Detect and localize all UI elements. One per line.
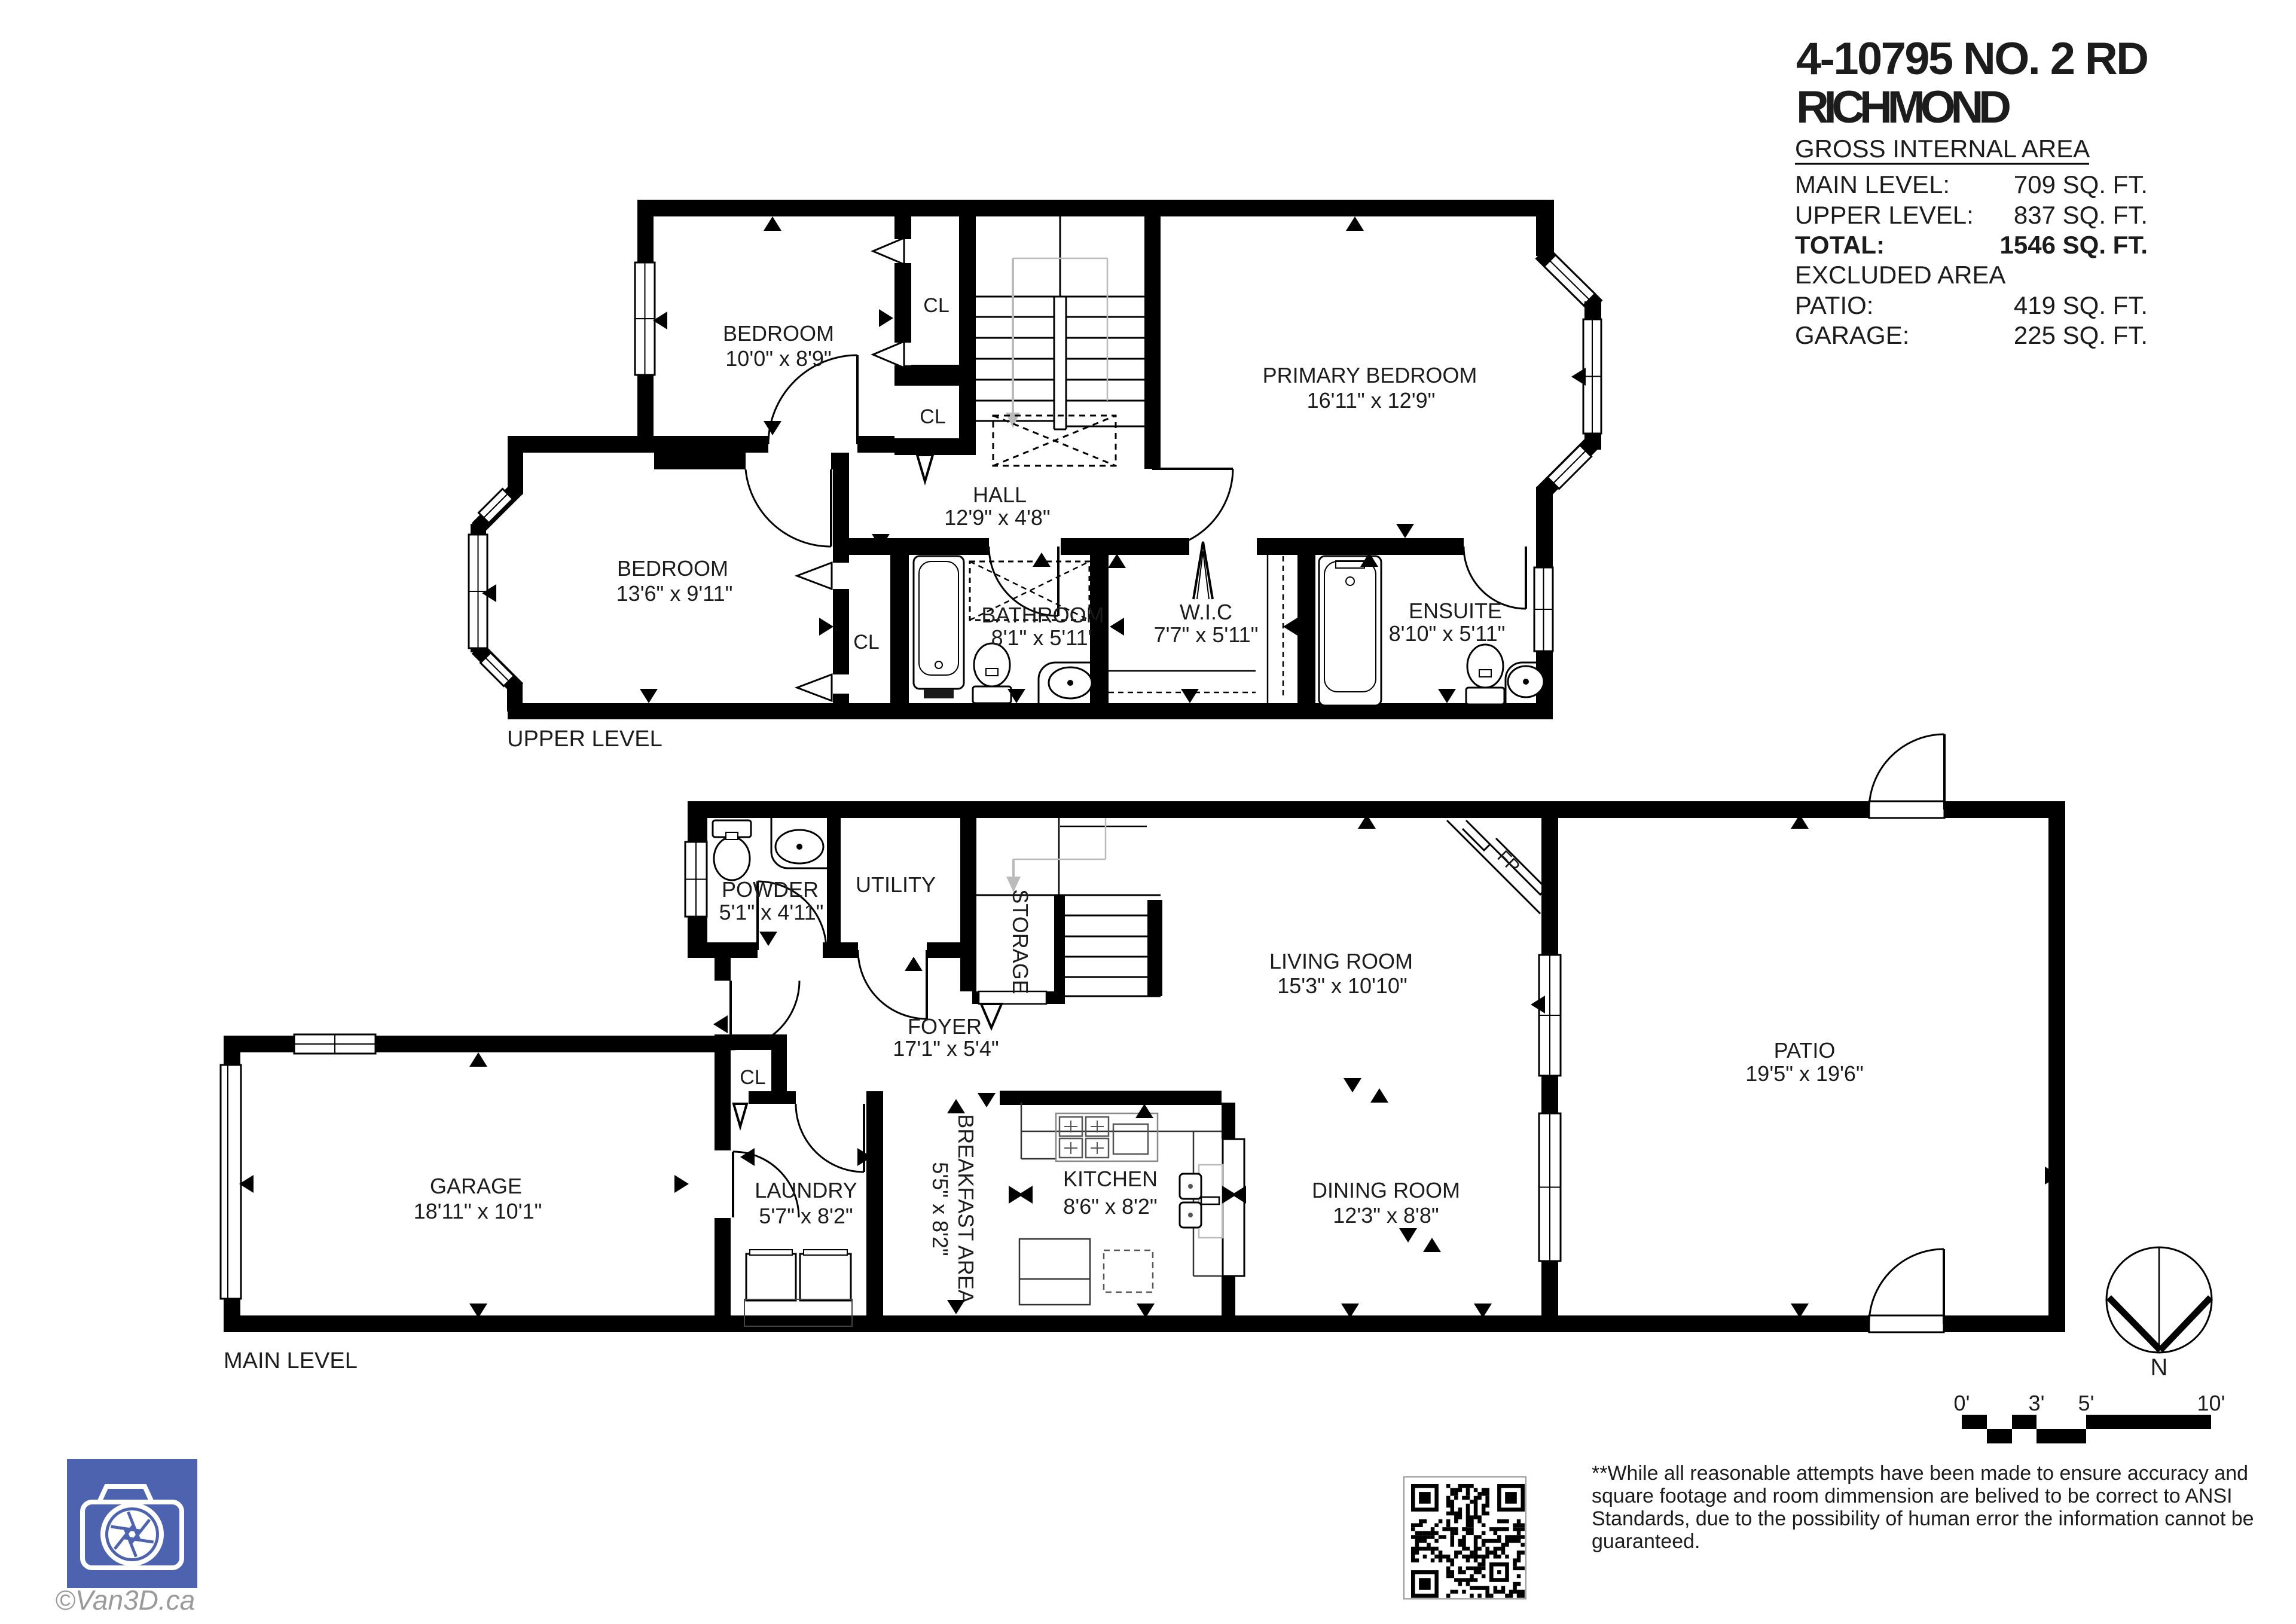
- svg-text:4-10795 NO. 2 RD: 4-10795 NO. 2 RD: [1796, 33, 2149, 84]
- svg-text:5'7" x 8'2": 5'7" x 8'2": [759, 1204, 853, 1228]
- svg-text:BEDROOM: BEDROOM: [617, 556, 728, 581]
- svg-text:STORAGE: STORAGE: [1008, 889, 1033, 994]
- svg-text:POWDER: POWDER: [722, 877, 819, 902]
- svg-text:10'0" x 8'9": 10'0" x 8'9": [725, 346, 831, 371]
- svg-text:5': 5': [2078, 1391, 2095, 1415]
- svg-text:1546 SQ. FT.: 1546 SQ. FT.: [2000, 231, 2148, 259]
- svg-text:8'1" x 5'11": 8'1" x 5'11": [991, 625, 1096, 650]
- svg-text:8'10" x 5'11": 8'10" x 5'11": [1389, 621, 1506, 646]
- svg-text:W.I.C: W.I.C: [1180, 600, 1232, 624]
- svg-text:PATIO: PATIO: [1774, 1038, 1836, 1063]
- svg-text:19'5" x 19'6": 19'5" x 19'6": [1745, 1061, 1863, 1086]
- svg-text:225 SQ. FT.: 225 SQ. FT.: [2014, 321, 2148, 349]
- svg-text:PATIO:: PATIO:: [1795, 291, 1873, 319]
- svg-text:13'6" x 9'11": 13'6" x 9'11": [616, 581, 733, 606]
- svg-text:0': 0': [1954, 1391, 1970, 1415]
- svg-text:RICHMOND: RICHMOND: [1796, 82, 2011, 133]
- svg-text:CL: CL: [923, 294, 949, 317]
- svg-text:16'11" x 12'9": 16'11" x 12'9": [1307, 388, 1436, 413]
- svg-text:8'6" x 8'2": 8'6" x 8'2": [1063, 1194, 1157, 1219]
- svg-text:15'3" x 10'10": 15'3" x 10'10": [1277, 973, 1407, 998]
- svg-text:LAUNDRY: LAUNDRY: [755, 1178, 857, 1202]
- svg-text:GARAGE:: GARAGE:: [1795, 321, 1909, 349]
- svg-text:TOTAL:: TOTAL:: [1795, 231, 1885, 259]
- svg-text:**While all reasonable attempt: **While all reasonable attempts have bee…: [1592, 1462, 2248, 1485]
- svg-text:BEDROOM: BEDROOM: [723, 321, 834, 346]
- svg-text:GARAGE: GARAGE: [430, 1174, 522, 1198]
- svg-text:MAIN LEVEL: MAIN LEVEL: [224, 1348, 358, 1373]
- svg-text:DINING ROOM: DINING ROOM: [1312, 1178, 1460, 1202]
- svg-text:square footage and room dimmen: square footage and room dimmension are b…: [1592, 1485, 2233, 1507]
- svg-text:419 SQ. FT.: 419 SQ. FT.: [2014, 291, 2148, 319]
- svg-text:CL: CL: [853, 631, 879, 654]
- svg-text:709 SQ. FT.: 709 SQ. FT.: [2014, 170, 2148, 199]
- svg-text:10': 10': [2197, 1391, 2225, 1415]
- svg-text:HALL: HALL: [973, 483, 1027, 507]
- svg-text:CL: CL: [740, 1066, 765, 1089]
- svg-text:FOYER: FOYER: [908, 1014, 982, 1039]
- svg-text:guaranteed.: guaranteed.: [1592, 1530, 1700, 1553]
- svg-text:837 SQ. FT.: 837 SQ. FT.: [2014, 201, 2148, 229]
- svg-text:Standards, due to the possibil: Standards, due to the possibility of hum…: [1592, 1507, 2254, 1530]
- svg-text:17'1" x 5'4": 17'1" x 5'4": [893, 1036, 999, 1061]
- svg-text:©Van3D.ca: ©Van3D.ca: [55, 1585, 195, 1616]
- svg-text:UPPER LEVEL:: UPPER LEVEL:: [1795, 201, 1974, 229]
- svg-text:12'9" x 4'8": 12'9" x 4'8": [944, 505, 1050, 530]
- svg-text:3': 3': [2029, 1391, 2045, 1415]
- svg-text:BATHROOM: BATHROOM: [981, 603, 1104, 627]
- svg-text:18'11" x 10'1": 18'11" x 10'1": [414, 1199, 542, 1223]
- svg-text:5'1" x 4'11": 5'1" x 4'11": [719, 900, 824, 924]
- svg-text:UPPER LEVEL: UPPER LEVEL: [507, 726, 662, 752]
- svg-text:GROSS INTERNAL AREA: GROSS INTERNAL AREA: [1795, 135, 2090, 163]
- svg-text:12'3" x 8'8": 12'3" x 8'8": [1333, 1203, 1439, 1228]
- svg-text:KITCHEN: KITCHEN: [1063, 1167, 1158, 1191]
- svg-text:5'5" x 8'2": 5'5" x 8'2": [928, 1162, 952, 1256]
- svg-text:N: N: [2151, 1354, 2168, 1381]
- svg-text:UTILITY: UTILITY: [856, 872, 936, 897]
- svg-text:PRIMARY BEDROOM: PRIMARY BEDROOM: [1263, 363, 1477, 387]
- svg-text:BREAKFAST AREA: BREAKFAST AREA: [954, 1114, 978, 1304]
- svg-text:LIVING ROOM: LIVING ROOM: [1269, 949, 1413, 973]
- svg-text:ENSUITE: ENSUITE: [1409, 599, 1502, 623]
- svg-text:7'7" x 5'11": 7'7" x 5'11": [1154, 622, 1259, 647]
- svg-text:EXCLUDED AREA: EXCLUDED AREA: [1795, 261, 2005, 289]
- svg-text:MAIN LEVEL:: MAIN LEVEL:: [1795, 170, 1950, 199]
- svg-text:CL: CL: [920, 405, 945, 428]
